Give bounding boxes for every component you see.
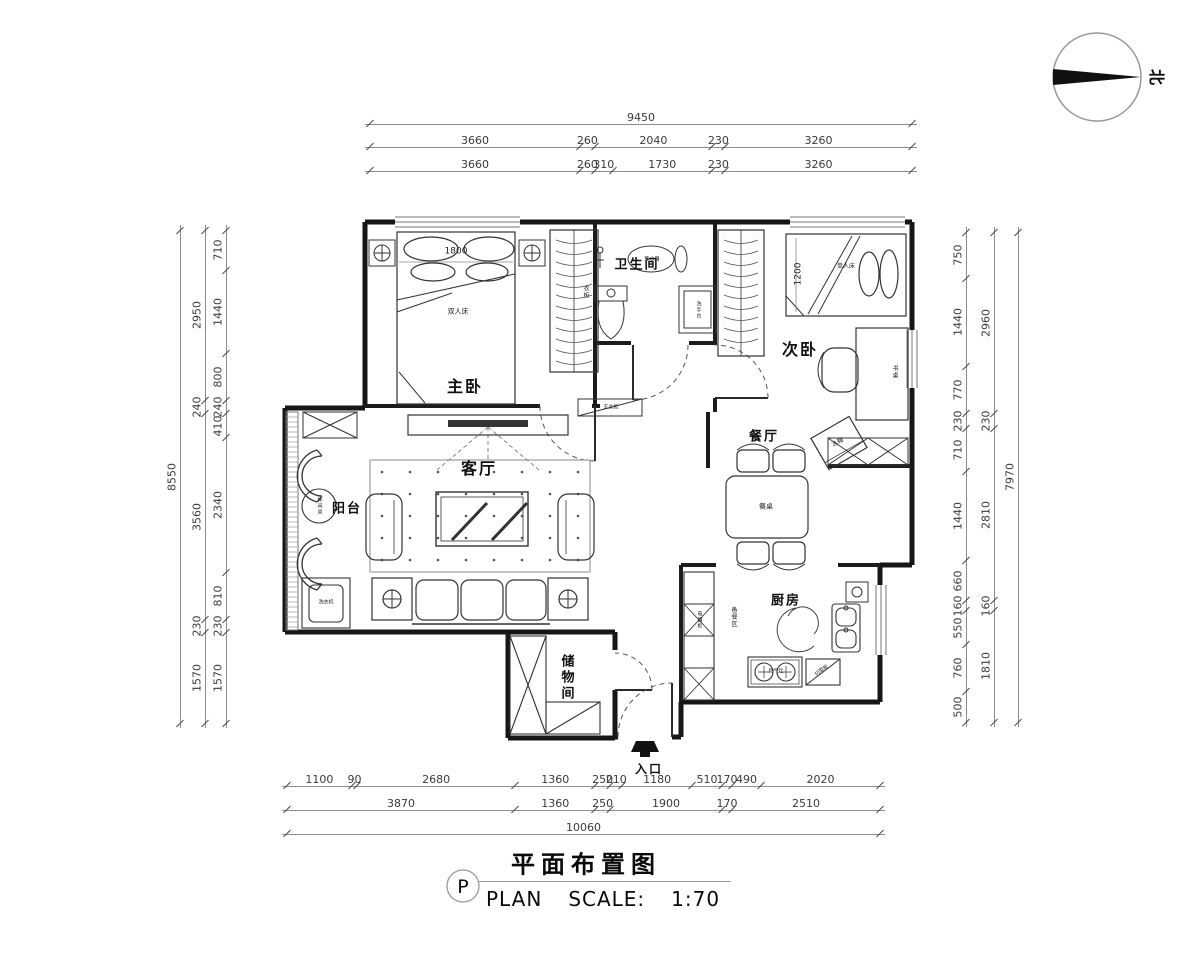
title-underline xyxy=(479,881,731,882)
dim-label: 1100 xyxy=(305,774,333,785)
dim-tick xyxy=(688,782,696,790)
dim-label: 550 xyxy=(953,617,964,638)
figure-sketch xyxy=(777,607,818,652)
dim-label: 230 xyxy=(953,411,964,432)
dim-label: 90 xyxy=(347,774,361,785)
dim-label: 410 xyxy=(213,415,224,436)
dim-chain-right-total: 7970 xyxy=(1004,232,1024,722)
dim-label: 170 xyxy=(717,774,738,785)
dim-label: 8550 xyxy=(167,463,178,491)
dim-label: 260 xyxy=(577,135,598,146)
dim-label: 500 xyxy=(953,696,964,717)
dim-label: 710 xyxy=(953,439,964,460)
dim-label: 3260 xyxy=(805,135,833,146)
dim-label: 2680 xyxy=(422,774,450,785)
dim-label: 230 xyxy=(708,159,729,170)
dim-label: 310 xyxy=(593,159,614,170)
dim-label: 3560 xyxy=(192,503,203,531)
dim-label: 2340 xyxy=(213,491,224,519)
single-bed xyxy=(786,234,906,316)
dim-label: 1360 xyxy=(541,798,569,809)
rug-dots xyxy=(381,471,580,562)
scale-value: 1:70 xyxy=(671,887,720,911)
dim-label: 170 xyxy=(717,798,738,809)
room-label-master: 主卧 xyxy=(447,379,483,395)
dim-label: 240 xyxy=(213,397,224,418)
dim-label: 1730 xyxy=(648,159,676,170)
dim-label: 1440 xyxy=(953,502,964,530)
dim-chain-bottom-row2: 3870136025019001702510 xyxy=(287,796,880,816)
dim-label: 230 xyxy=(981,411,992,432)
dim-tick xyxy=(962,468,970,476)
drawing-title: 平面布置图 xyxy=(511,845,661,880)
dim-label: 160 xyxy=(953,595,964,616)
room-label-second: 次卧 xyxy=(782,342,818,358)
dim-tick xyxy=(757,782,765,790)
floor-plan-page: 9450 366026020402303260 3660260310173023… xyxy=(0,0,1200,960)
entrance-marker xyxy=(631,741,659,757)
dim-label: 210 xyxy=(606,774,627,785)
dim-label: 1440 xyxy=(213,298,224,326)
label-washing-machine: 洗衣机 xyxy=(318,601,333,606)
dim-label: 2810 xyxy=(981,501,992,529)
dim-label: 7970 xyxy=(1005,463,1016,491)
dim-chain-right-mid: 296023028101601810 xyxy=(980,232,1000,722)
dim-label: 1570 xyxy=(213,664,224,692)
dim-tick xyxy=(962,687,970,695)
dim-label: 160 xyxy=(981,595,992,616)
dim-label: 2510 xyxy=(792,798,820,809)
scale-label: SCALE: xyxy=(568,887,645,911)
dim-chain-right-inner: 75014407702307101440660160550760500 xyxy=(952,232,972,722)
storage-cabinets xyxy=(510,636,600,734)
dim-label: 660 xyxy=(953,570,964,591)
room-label-living: 客厅 xyxy=(461,461,497,477)
dim-label: 230 xyxy=(213,615,224,636)
dim-tick xyxy=(962,363,970,371)
label-wash-basin: 洗手台 xyxy=(696,301,701,319)
dim-label: 490 xyxy=(736,774,757,785)
dim-label: 510 xyxy=(696,774,717,785)
label-water-heater: 热水器 xyxy=(644,258,659,263)
room-label-balcony: 阳台 xyxy=(332,503,362,516)
dim-label: 2040 xyxy=(639,135,667,146)
dim-label: 1570 xyxy=(192,664,203,692)
room-label-dining: 餐厅 xyxy=(749,431,779,444)
dim-label: 1360 xyxy=(541,774,569,785)
dim-label: 810 xyxy=(213,585,224,606)
label-double-bed: 双人床 xyxy=(448,309,469,316)
dim-label: 760 xyxy=(953,657,964,678)
gas-meter xyxy=(846,582,868,602)
label-prep-area: 备餐区 xyxy=(730,607,736,628)
room-label-entrance: 入口 xyxy=(635,763,663,775)
label-leisure-table: 休闲桌 xyxy=(317,497,322,515)
drawing-subtitle: PLANSCALE:1:70 xyxy=(486,887,720,911)
dim-label: 9450 xyxy=(627,112,655,123)
sofa-set xyxy=(366,494,594,624)
dim-label: 2960 xyxy=(981,309,992,337)
dim-label: 250 xyxy=(592,798,613,809)
dim-label: 230 xyxy=(708,135,729,146)
north-arrow xyxy=(1053,33,1141,121)
dim-chain-left-mid: 295024035602301570 xyxy=(191,230,211,723)
dim-label: 3870 xyxy=(387,798,415,809)
kitchen-sink xyxy=(832,604,860,652)
dim-tick xyxy=(222,350,230,358)
dim-chain-left-total: 8550 xyxy=(166,230,186,723)
dim-tick xyxy=(511,806,519,814)
dim-label: 710 xyxy=(213,240,224,261)
balcony-window-hatch xyxy=(286,417,298,627)
dim-chain-left-inner: 710144080024041023408102301570 xyxy=(212,230,232,723)
dim-tick xyxy=(962,641,970,649)
room-label-kitchen: 厨房 xyxy=(771,595,801,608)
dim-label: 1900 xyxy=(652,798,680,809)
dim-label: 1440 xyxy=(953,308,964,336)
label-wardrobe-master: 衣柜 xyxy=(582,285,588,299)
plan-label: PLAN xyxy=(486,887,542,911)
room-label-storage: 储物间 xyxy=(560,654,573,702)
dim-chain-bottom-row1: 1100902680136025021011805101704902020 xyxy=(287,772,880,792)
north-label: 北 xyxy=(1146,69,1170,85)
dim-label: 10060 xyxy=(566,822,601,833)
title-letter: P xyxy=(457,876,468,898)
dim-tick xyxy=(511,782,519,790)
dim-label: 1810 xyxy=(981,652,992,680)
dim-label: 3260 xyxy=(805,159,833,170)
dim-tick xyxy=(962,274,970,282)
second-wardrobe xyxy=(718,230,764,356)
kitchen-tall-cabinet xyxy=(684,572,714,700)
dim-tick xyxy=(222,569,230,577)
dim-label: 770 xyxy=(953,380,964,401)
dim-label: 750 xyxy=(953,245,964,266)
dim-tick xyxy=(962,556,970,564)
label-dining-table: 餐桌 xyxy=(759,504,773,511)
dim-label: 2950 xyxy=(192,301,203,329)
dim-label: 240 xyxy=(192,397,203,418)
dim-chain-top-row2: 366026020402303260 xyxy=(370,133,912,153)
dim-label: 3660 xyxy=(461,135,489,146)
label-gas-stove: 燃气灶 xyxy=(768,670,783,675)
dim-label: 3660 xyxy=(461,159,489,170)
door-arcs xyxy=(540,345,768,737)
dim-label: 800 xyxy=(213,367,224,388)
dim-chain-bottom-total: 10060 xyxy=(287,820,880,840)
balcony-cabinet xyxy=(303,412,357,438)
label-appliance-cabinet: 电器柜 xyxy=(697,611,702,629)
dim-tick xyxy=(222,267,230,275)
label-desk: 书桌 xyxy=(891,365,897,379)
dim-chain-top-row3: 366026031017302303260 xyxy=(370,157,912,177)
label-single-bed-width: 1200 xyxy=(795,263,804,286)
dim-label: 2020 xyxy=(806,774,834,785)
label-double-bed-width: 1800 xyxy=(445,248,468,257)
coffee-table xyxy=(436,492,528,546)
label-entry-cabinet: 玄关柜 xyxy=(603,406,618,411)
dim-label: 230 xyxy=(192,615,203,636)
dim-chain-top-total: 9450 xyxy=(370,110,912,130)
label-single-bed: 单人床 xyxy=(837,264,855,270)
